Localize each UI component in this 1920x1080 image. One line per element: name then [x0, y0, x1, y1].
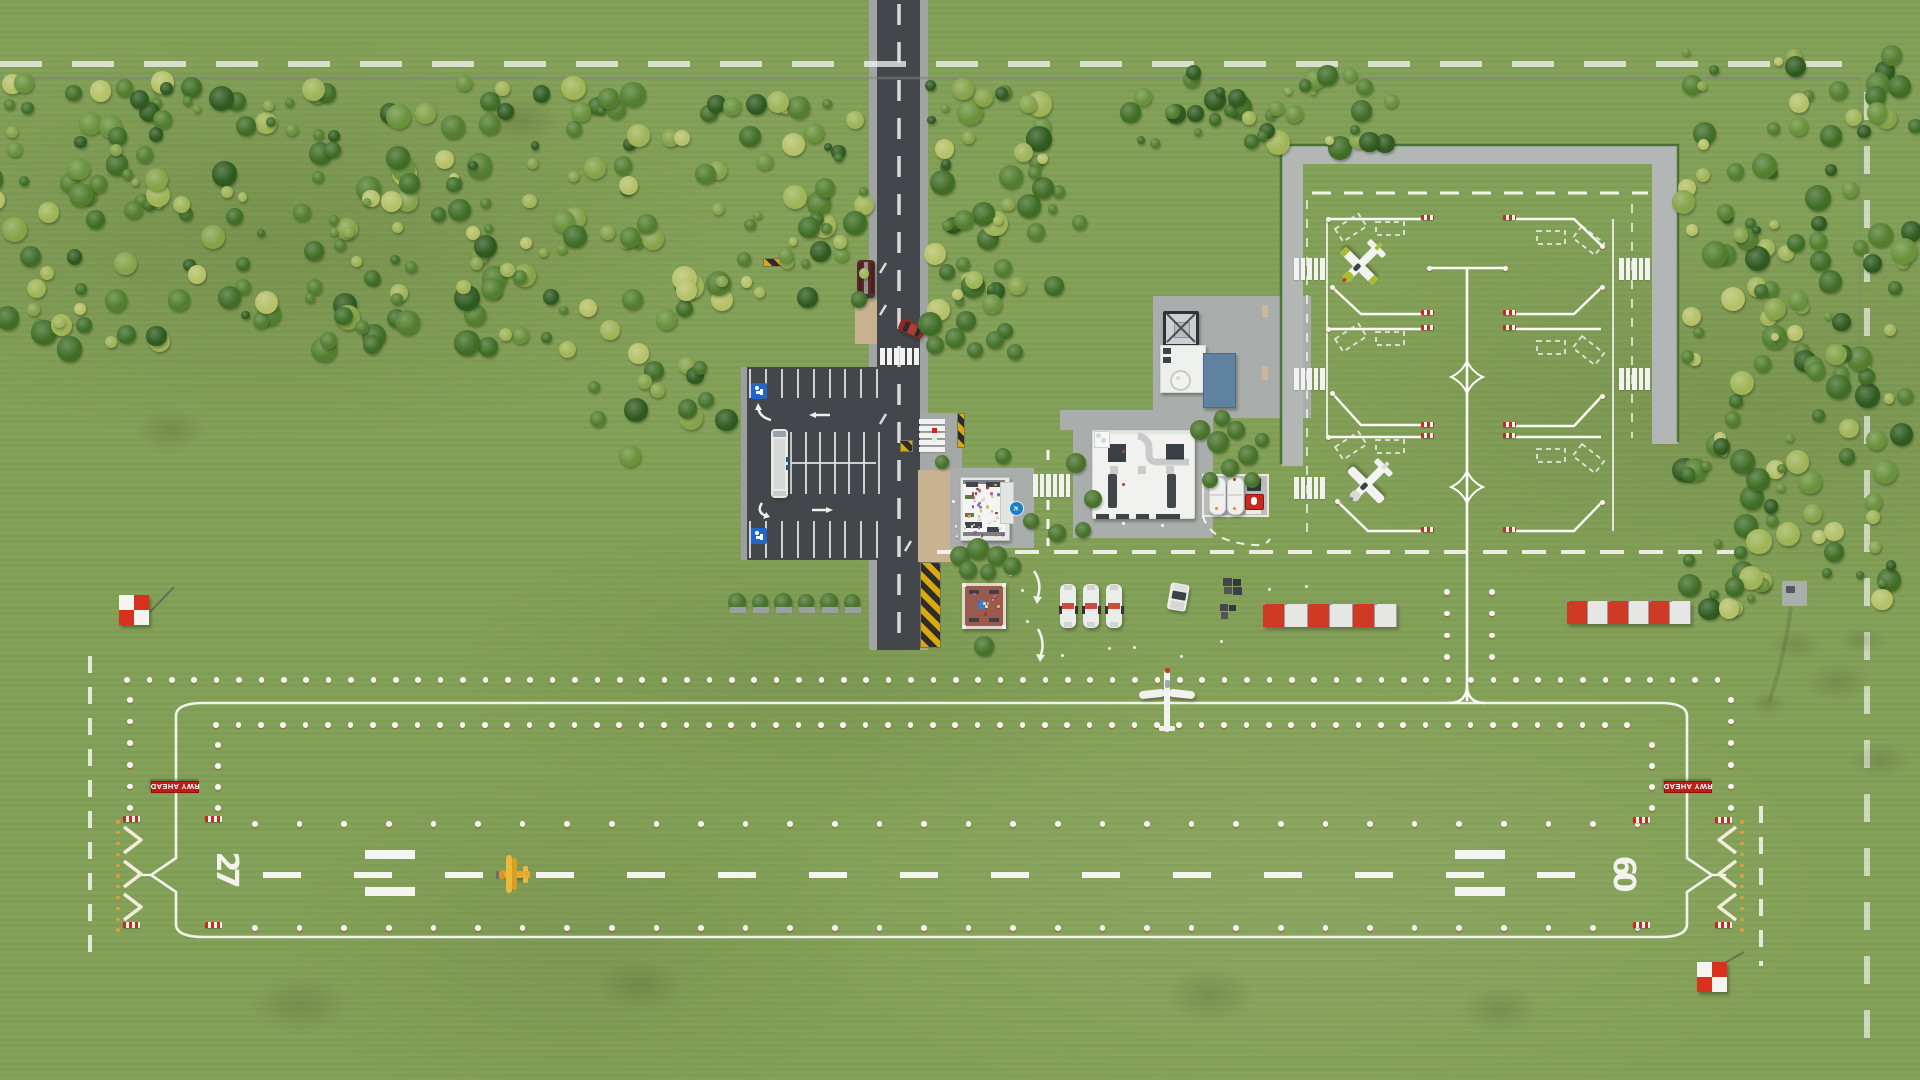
runway-light-row-inner [1221, 722, 1227, 728]
forest-road-west [695, 164, 716, 185]
runway-edge-lights-north [475, 821, 481, 827]
runway-end-lights [1728, 784, 1734, 790]
forest-band-west [474, 235, 497, 258]
plaza-people [997, 605, 1000, 608]
hedge-row [698, 392, 714, 408]
grass-wear [1838, 626, 1886, 655]
forest-band-west [479, 113, 500, 134]
runway-light-row-inner [1132, 722, 1138, 728]
forest-east-south [1871, 589, 1892, 610]
stand-tip-markers [1421, 422, 1434, 427]
forest-east [1701, 461, 1711, 471]
runway-centerline [1173, 872, 1211, 878]
forest-apron-north [1284, 87, 1292, 95]
forest-road-east [927, 116, 936, 125]
crosswalk-apron-west [1320, 258, 1325, 280]
forest-band-west [263, 100, 274, 111]
runway-edge-lights-south [1323, 925, 1329, 931]
hedge-pad [822, 607, 838, 613]
runway-edge-lights-south [1278, 925, 1284, 931]
stand-tip-markers [1503, 310, 1516, 315]
forest-east [1672, 190, 1696, 214]
runway-light-row-outer [572, 677, 578, 683]
forest-band-west [67, 158, 89, 180]
crosswalk-apron-west [1301, 368, 1306, 390]
parking-stall-lines [829, 369, 831, 398]
forest-east [1729, 394, 1743, 408]
forest-road-east [1008, 277, 1026, 295]
forest-road-east [1072, 215, 1087, 230]
runway-light-row-inner [437, 722, 443, 728]
runway-edge-lights-north [743, 821, 749, 827]
forest-east [1789, 93, 1809, 113]
orange-threshold-dots [1740, 907, 1743, 910]
crosswalk-apron-west [1307, 477, 1312, 499]
trees-terminal [1048, 524, 1066, 542]
runway-edge-lights-north [1144, 821, 1150, 827]
forest-east [1866, 430, 1886, 450]
forest-band-west [656, 309, 677, 330]
terminal-passengers [968, 515, 971, 518]
forest-band-west [559, 341, 577, 359]
runway-centerline [718, 872, 756, 878]
orange-threshold-dots [116, 864, 119, 867]
airport-icon[interactable]: ✈ [1009, 501, 1024, 516]
runway-light-row-outer [1087, 677, 1093, 683]
runway-light-row-inner [1580, 722, 1586, 728]
crosswalk-apron-east [1639, 258, 1644, 280]
runway-end-lights [1649, 763, 1655, 769]
forest-band-west [522, 194, 536, 208]
crosswalk-apron-west [1294, 477, 1299, 499]
runway-edge-lights-south [877, 925, 883, 931]
runway-light-row-outer [863, 677, 869, 683]
forest-east [1717, 204, 1734, 221]
forest-road-east [1037, 153, 1048, 164]
runway-end-lights [215, 805, 221, 811]
taxiway-lights [1444, 633, 1450, 639]
runway-light-row-inner [840, 722, 846, 728]
forest-east [1730, 371, 1754, 395]
forest-road-east [930, 170, 955, 195]
forest-east-south [1734, 546, 1747, 559]
orange-threshold-dots [1740, 896, 1743, 899]
runway-light-row-inner [236, 722, 242, 728]
forest-band-west [124, 201, 142, 219]
forest-band-west [67, 249, 82, 264]
forest-east [1752, 154, 1776, 178]
forest-east [1702, 241, 1727, 266]
runway-light-row-inner [549, 722, 555, 728]
forest-band-west [40, 266, 54, 280]
forest-east [1803, 504, 1822, 523]
forest-band-west [238, 192, 248, 202]
forest-band-west [221, 186, 233, 198]
parking-entrance [869, 498, 877, 518]
runway-light-row-inner [415, 722, 421, 728]
checker-marker[interactable] [119, 595, 149, 625]
runway-light-row-outer [729, 677, 735, 683]
forest-east-south [1886, 560, 1897, 571]
runway-light-row-inner [303, 722, 309, 728]
forest-east [1681, 467, 1695, 481]
runway-centerline [445, 872, 483, 878]
runway-edge-lights-south [1144, 925, 1150, 931]
crosswalk-apron-west [1314, 258, 1319, 280]
forest-road-west [810, 241, 831, 262]
forest-band-west [193, 105, 201, 113]
forest-band-west [598, 88, 619, 109]
taxiway-lights [1444, 654, 1450, 660]
runway-edge-lights-north [877, 821, 883, 827]
crosswalk-driveway [919, 447, 945, 452]
forest-band-west [209, 86, 234, 111]
forest-east [1809, 232, 1827, 250]
forest-east [1682, 48, 1690, 56]
rwy-ahead-sign[interactable]: RWY AHEAD [1664, 781, 1712, 793]
ground-debris [1108, 647, 1111, 650]
forest-band-west [212, 161, 238, 187]
parking-stall-lines [797, 521, 799, 558]
runway-light-row-outer [1580, 677, 1586, 683]
parking-stall-lines [790, 432, 792, 494]
runway-light-row-inner [706, 722, 712, 728]
runway-light-row-outer [1177, 677, 1183, 683]
forest-band-west [19, 176, 29, 186]
forest-band-west [431, 207, 446, 222]
forest-band-west [285, 123, 298, 136]
runway-edge-lights-south [1367, 925, 1373, 931]
forest-east-south [1709, 590, 1718, 599]
forest-east [1829, 81, 1848, 100]
runway-end-lights [1649, 805, 1655, 811]
forest-east-south [1719, 598, 1739, 618]
stand-tip-markers [1421, 527, 1434, 532]
forest-east [1873, 460, 1897, 484]
hedge-pad [845, 607, 861, 613]
forest-east-south [1822, 568, 1832, 578]
forest-apron-north [1343, 68, 1357, 82]
forest-apron-north [1194, 128, 1202, 136]
runway-light-row-inner [1064, 722, 1070, 728]
forest-east [1847, 346, 1872, 371]
forest-band-west [76, 317, 92, 333]
taxiway-lights [1489, 633, 1495, 639]
forest-band-west [399, 173, 420, 194]
runway-light-row-outer [1423, 677, 1429, 683]
runway-light-row-inner [258, 722, 264, 728]
forest-band-west [74, 303, 86, 315]
forest-band-west [520, 237, 532, 249]
forest-east [1819, 270, 1842, 293]
runway-light-row-outer [259, 677, 265, 683]
plaza-people [985, 605, 988, 608]
forest-band-west [131, 178, 139, 186]
runway-centerline [1537, 872, 1575, 878]
forest-road-east [995, 87, 1008, 100]
taxiway-lights [1489, 654, 1495, 660]
crosswalk-apron-east [1626, 258, 1631, 280]
forest-east [1825, 164, 1837, 176]
forest-east [1807, 362, 1826, 381]
checker-marker[interactable] [1697, 962, 1727, 992]
runway-light-row-outer [953, 677, 959, 683]
parking-stall-lines [813, 521, 815, 558]
ground-debris [1021, 589, 1024, 592]
forest-east [1776, 483, 1785, 492]
forest-band-west [7, 142, 22, 157]
forest-band-west [446, 177, 460, 191]
forest-band-west [566, 121, 583, 138]
parking-stall-lines [813, 369, 815, 398]
forest-band-west [364, 270, 380, 286]
forest-band-west [559, 306, 568, 315]
stand-tip-markers [1421, 215, 1434, 220]
forest-band-west [415, 103, 436, 124]
stand-tip-markers [1421, 433, 1434, 438]
forest-band-west [255, 291, 278, 314]
runway-light-row-outer [1558, 677, 1564, 683]
runway-light-row-outer [1020, 677, 1026, 683]
runway-edge-lights-south [1010, 925, 1016, 931]
runway-light-row-outer [236, 677, 242, 683]
forest-band-west [226, 208, 243, 225]
forest-band-west [105, 289, 127, 311]
forest-band-west [320, 332, 337, 349]
forest-band-west [90, 80, 111, 101]
forest-road-west [834, 153, 843, 162]
forest-band-west [571, 102, 591, 122]
forest-east [1766, 514, 1778, 526]
red-white-barrier[interactable] [1567, 601, 1691, 624]
runway-light-row-inner [325, 722, 331, 728]
runway-edge-lights-north [698, 821, 704, 827]
forest-band-west [543, 289, 559, 305]
stand-tip-markers [1503, 325, 1516, 330]
forest-road-east [974, 88, 993, 107]
crosswalk-taxi-path [1053, 474, 1058, 497]
terminal-passengers [981, 498, 984, 501]
runway-light-row-outer [1110, 677, 1116, 683]
parking-stall-lines [797, 369, 799, 398]
forest-band-west [293, 204, 310, 221]
forest-road-west [739, 126, 760, 147]
forest-east [1839, 448, 1855, 464]
runway-end-lights [127, 697, 133, 703]
crosswalk-apron-west [1307, 258, 1312, 280]
plaza-people [984, 612, 987, 615]
forest-east [1857, 125, 1870, 138]
runway-light-row-outer [1244, 677, 1250, 683]
runway-light-row-outer [886, 677, 892, 683]
forest-east [1771, 333, 1779, 341]
crosswalk-road [894, 348, 899, 365]
runway-light-row-outer [147, 677, 153, 683]
forest-band-west [75, 283, 87, 295]
trees-parking-west [715, 409, 738, 432]
runway-edge-lights-south [341, 925, 347, 931]
forest-band-west [600, 225, 615, 240]
forest-band-west [386, 146, 410, 170]
forest-road-east [918, 312, 942, 336]
runway-edge-lights-north [297, 821, 303, 827]
runway-centerline [354, 872, 392, 878]
grass-wear [1850, 742, 1910, 778]
crosswalk-apron-east [1619, 368, 1624, 390]
crosswalk-taxi-path [1046, 474, 1051, 497]
forest-road-west [801, 259, 811, 269]
apron-path-left [1282, 146, 1303, 466]
stand-tip-markers [1503, 527, 1516, 532]
rwy-ahead-sign[interactable]: RWY AHEAD [151, 781, 199, 793]
hedge-row [974, 636, 994, 656]
runway-light-row-outer [326, 677, 332, 683]
runway-light-row-outer [1715, 677, 1721, 683]
forest-east [1721, 287, 1746, 312]
forest-band-west [329, 215, 339, 225]
runway-edge-lights-south [1546, 925, 1552, 931]
forest-band-west [20, 246, 41, 267]
forest-band-west [21, 102, 34, 115]
forest-apron-north [1384, 94, 1398, 108]
forest-band-west [328, 130, 340, 142]
forest-east [1824, 312, 1832, 320]
stand-line-dots [1326, 327, 1331, 332]
runway-light-row-inner [1512, 722, 1518, 728]
runway-light-row-outer [1222, 677, 1228, 683]
red-white-markers [123, 922, 140, 928]
crosswalk-apron-west [1314, 368, 1319, 390]
forest-band-west [676, 300, 693, 317]
stand-line-dots [1326, 217, 1331, 222]
forest-band-west [557, 244, 567, 254]
forest-road-west [834, 247, 849, 262]
runway-edge-lights-south [475, 925, 481, 931]
plaza-people [973, 593, 976, 596]
forest-band-west [173, 196, 190, 213]
runway-light-row-outer [438, 677, 444, 683]
parking-stall-lines [848, 432, 850, 494]
forest-band-west [674, 130, 690, 146]
runway-light-row-inner [952, 722, 958, 728]
parking-stall-lines [829, 521, 831, 558]
forest-east-south [1678, 574, 1701, 597]
forest-east [1709, 65, 1719, 75]
forest-apron-north [1257, 130, 1268, 141]
forest-band-west [38, 202, 59, 223]
ground-debris [1305, 585, 1308, 588]
stand-line-dots [1326, 435, 1331, 440]
hedge-pad [730, 607, 746, 613]
forest-road-west [824, 143, 832, 151]
forest-band-west [579, 299, 597, 317]
trees-main-terminal-east [1238, 445, 1258, 465]
runway-end-lights [1728, 719, 1734, 725]
forest-band-west [257, 229, 265, 237]
ground-debris [1026, 620, 1029, 623]
runway-light-row-inner [1020, 722, 1026, 728]
runway-light-row-outer [908, 677, 914, 683]
terminal-passengers [995, 512, 998, 515]
forest-band-west [253, 312, 269, 328]
forest-band-west [27, 303, 40, 316]
forest-apron-north [1317, 65, 1337, 85]
trees-terminal [1023, 513, 1039, 529]
orange-threshold-dots [1740, 928, 1743, 931]
runway-light-row-inner [751, 722, 757, 728]
forest-band-west [563, 225, 586, 248]
trees-plaza [959, 561, 977, 579]
forest-east [1884, 324, 1896, 336]
forest-band-west [160, 82, 173, 95]
forest-band-west [512, 327, 530, 345]
runway-light-row-inner [1109, 722, 1115, 728]
forest-band-west [241, 311, 249, 319]
runway-light-row-inner [504, 722, 510, 728]
runway-light-row-outer [460, 677, 466, 683]
grass-wear [1748, 692, 1788, 716]
crosswalk-apron-east [1632, 258, 1637, 280]
runway-light-row-outer [931, 677, 937, 683]
forest-east [1686, 224, 1698, 236]
orange-threshold-dots [116, 896, 119, 899]
forest-east [1881, 45, 1902, 66]
runway-light-row-outer [1334, 677, 1340, 683]
runway-light-row-inner [1602, 722, 1608, 728]
forest-band-west [499, 328, 512, 341]
forest-band-west [65, 85, 81, 101]
runway-light-row-inner [661, 722, 667, 728]
forest-band-west [122, 169, 133, 180]
runway-light-row-inner [594, 722, 600, 728]
forest-road-east [1019, 95, 1037, 113]
runway-light-row-outer [774, 677, 780, 683]
forest-band-west [627, 124, 650, 147]
crosswalk-apron-east [1645, 368, 1650, 390]
forest-road-east [1044, 276, 1064, 296]
trees-terminal [1066, 453, 1086, 473]
forest-band-west [236, 257, 250, 271]
runway-light-row-inner [1535, 722, 1541, 728]
runway-edge-lights-north [1546, 821, 1552, 827]
runway-centerline [991, 872, 1029, 878]
runway-edge-lights-north [1233, 821, 1239, 827]
forest-road-west [754, 287, 765, 298]
runway-centerline [1446, 872, 1484, 878]
forest-east [1890, 423, 1913, 446]
forest-east [1725, 411, 1741, 427]
forest-apron-north [1165, 105, 1179, 119]
orange-threshold-dots [116, 831, 119, 834]
trees-parking-west [590, 411, 606, 427]
forest-road-east [1032, 177, 1054, 199]
forest-road-east [1014, 143, 1033, 162]
red-white-barrier[interactable] [1263, 604, 1397, 627]
taxiway-lights [1444, 589, 1450, 595]
crosswalk-apron-east [1619, 258, 1624, 280]
runway-end-lights [1728, 805, 1734, 811]
hedge-pad [776, 607, 792, 613]
runway-centerline [1355, 872, 1393, 878]
runway-light-row-outer [998, 677, 1004, 683]
runway-centerline [900, 872, 938, 878]
forest-east [1826, 375, 1851, 400]
forest-band-west [181, 77, 202, 98]
forest-east [1764, 499, 1779, 514]
forest-band-west [470, 257, 483, 270]
red-white-markers [205, 922, 222, 928]
runway-light-row-outer [1603, 677, 1609, 683]
